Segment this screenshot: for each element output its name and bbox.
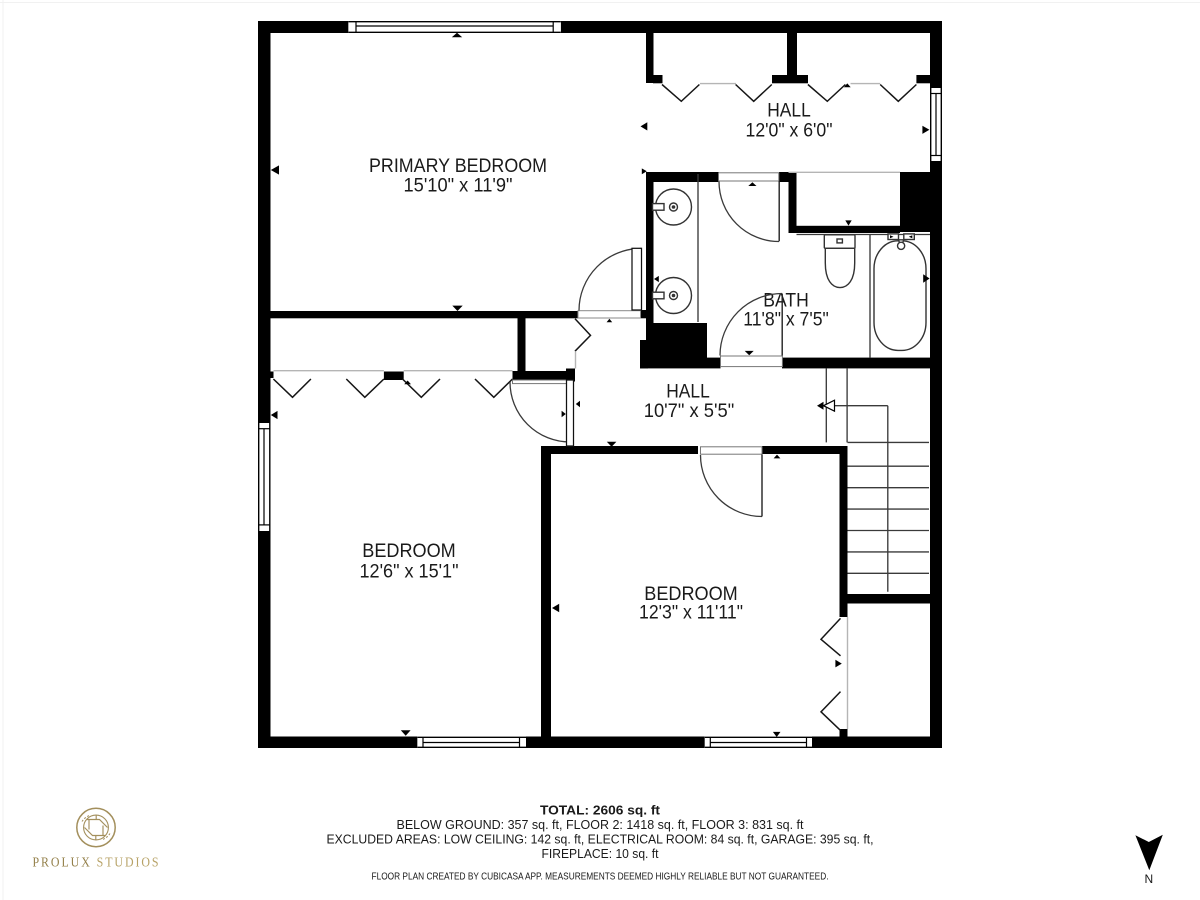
svg-text:15'10" x 11'9": 15'10" x 11'9" [404, 176, 513, 197]
svg-text:FIREPLACE: 10 sq. ft: FIREPLACE: 10 sq. ft [542, 846, 659, 861]
svg-text:FLOOR PLAN CREATED BY CUBICASA: FLOOR PLAN CREATED BY CUBICASA APP. MEAS… [372, 872, 829, 883]
svg-text:BEDROOM: BEDROOM [362, 541, 456, 562]
svg-text:12'0" x 6'0": 12'0" x 6'0" [746, 121, 833, 142]
svg-text:12'6" x 15'1": 12'6" x 15'1" [360, 562, 459, 583]
svg-text:10'7" x 5'5": 10'7" x 5'5" [644, 401, 735, 422]
svg-text:12'3" x 11'11": 12'3" x 11'11" [639, 603, 743, 624]
svg-text:N: N [1144, 872, 1153, 886]
svg-text:11'8" x 7'5": 11'8" x 7'5" [743, 310, 829, 331]
svg-text:HALL: HALL [666, 382, 710, 403]
svg-text:PROLUX STUDIOS: PROLUX STUDIOS [33, 855, 161, 870]
svg-text:HALL: HALL [767, 101, 811, 122]
svg-text:BELOW GROUND: 357 sq. ft, FLOO: BELOW GROUND: 357 sq. ft, FLOOR 2: 1418 … [397, 817, 804, 832]
svg-text:EXCLUDED AREAS: LOW CEILING: 1: EXCLUDED AREAS: LOW CEILING: 142 sq. ft,… [327, 832, 874, 847]
svg-text:PRIMARY BEDROOM: PRIMARY BEDROOM [369, 156, 547, 177]
svg-text:BATH: BATH [763, 291, 809, 312]
svg-text:TOTAL: 2606 sq. ft: TOTAL: 2606 sq. ft [540, 803, 661, 818]
